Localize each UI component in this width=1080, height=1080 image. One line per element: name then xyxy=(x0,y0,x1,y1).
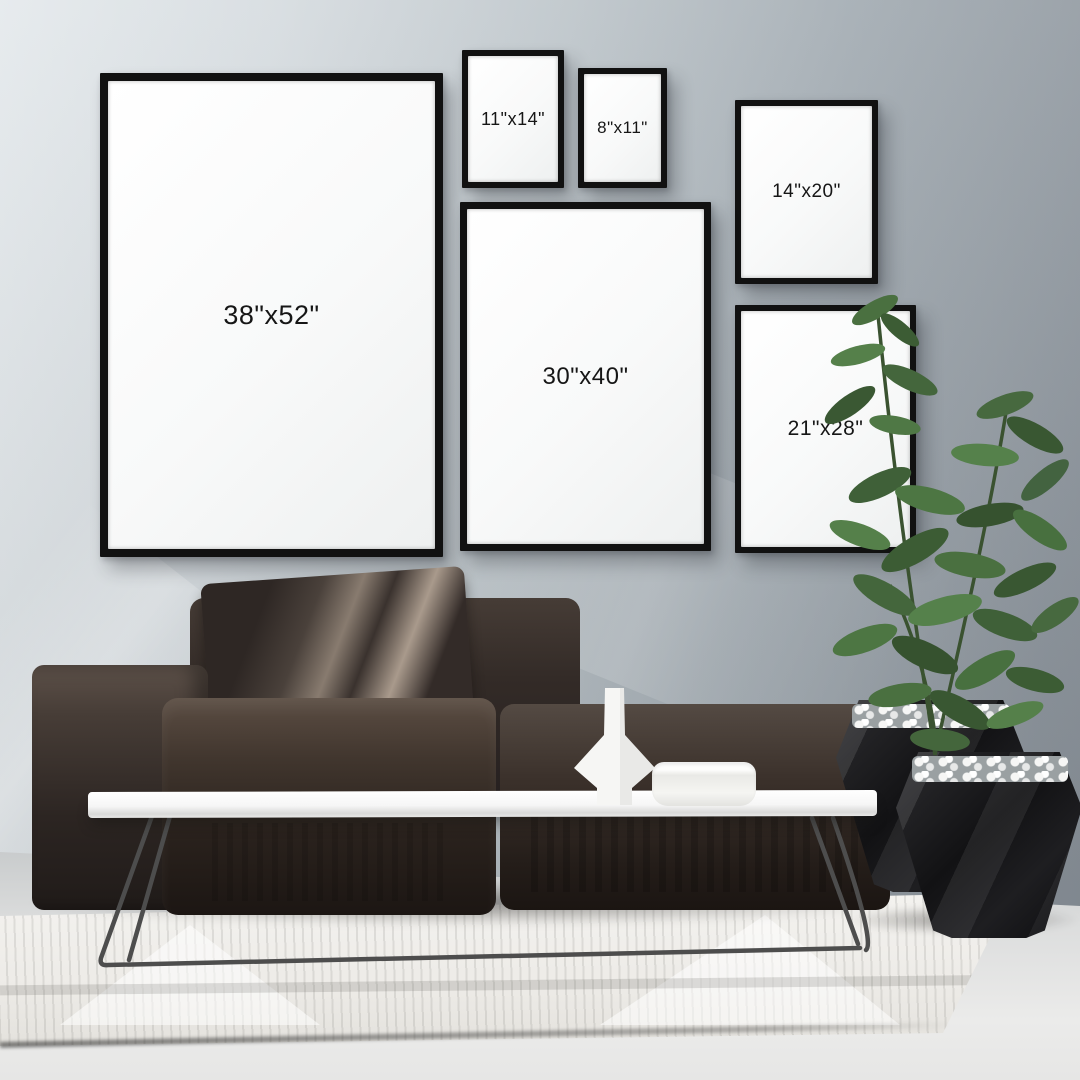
white-bowl xyxy=(652,762,756,806)
frame-matte: 11"x14" xyxy=(468,56,558,182)
coffee-table-top xyxy=(88,790,877,818)
size-label-14x20: 14"x20" xyxy=(772,181,841,203)
frame-matte: 8"x11" xyxy=(584,74,661,182)
living-room-mockup: 38"x52" 11"x14" 8"x11" 14"x20" 30"x40" 2… xyxy=(0,0,1080,1080)
frame-14x20: 14"x20" xyxy=(735,100,878,284)
size-label-30x40: 30"x40" xyxy=(543,363,629,391)
white-vase xyxy=(572,688,657,806)
frame-8x11: 8"x11" xyxy=(578,68,667,188)
frame-matte: 14"x20" xyxy=(741,106,872,278)
size-label-11x14: 11"x14" xyxy=(481,109,545,130)
potted-plant xyxy=(820,285,1080,780)
frame-38x52: 38"x52" xyxy=(100,73,443,557)
rug-pattern xyxy=(60,925,320,1025)
frame-matte: 38"x52" xyxy=(108,81,435,549)
frame-30x40: 30"x40" xyxy=(460,202,711,551)
size-label-8x11: 8"x11" xyxy=(597,118,648,138)
frame-11x14: 11"x14" xyxy=(462,50,564,188)
size-label-38x52: 38"x52" xyxy=(223,300,319,331)
frame-matte: 30"x40" xyxy=(467,209,704,544)
